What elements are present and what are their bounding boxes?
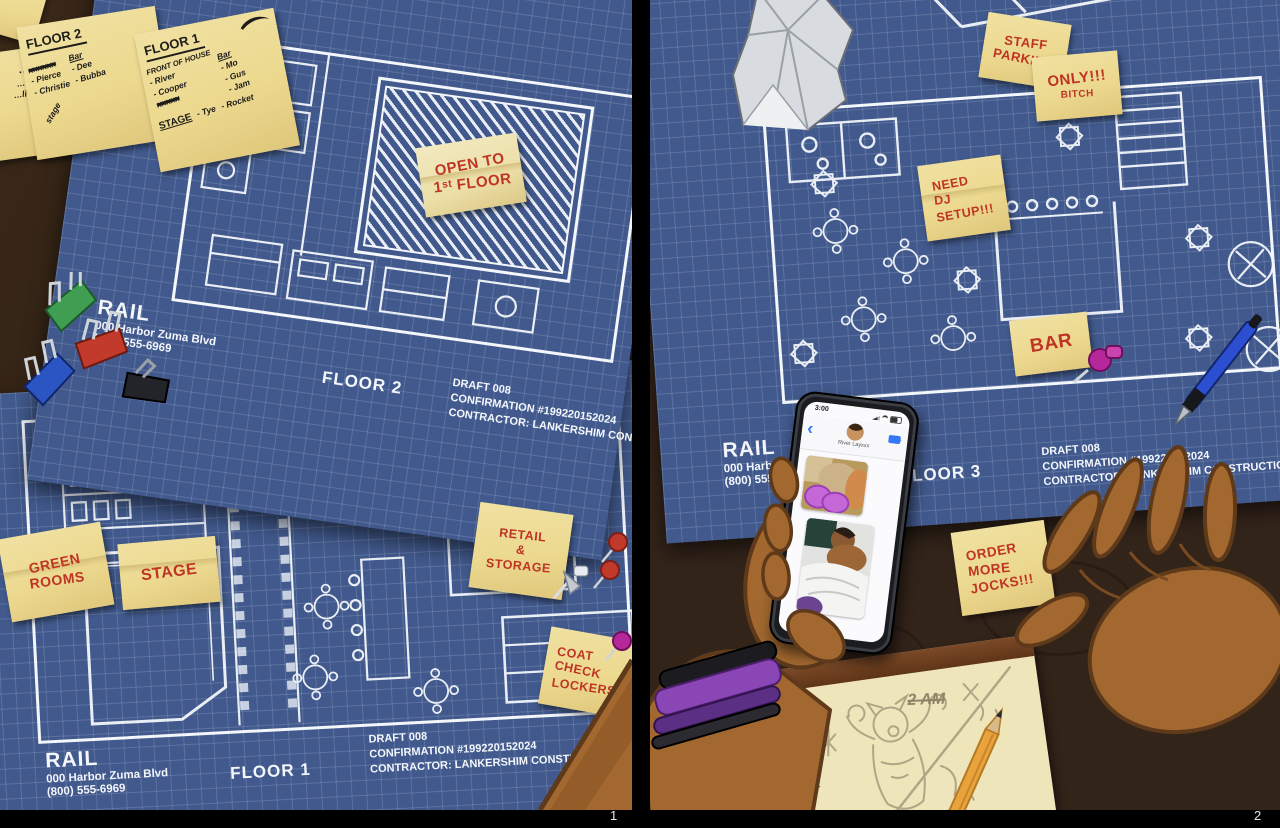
green-binder-clip-icon — [34, 272, 104, 332]
binder-clips — [8, 272, 173, 412]
note-line: - Tye — [195, 104, 218, 123]
sticky-note-stage: STAGE — [117, 536, 220, 610]
blue-binder-clip-icon — [11, 337, 80, 406]
contact-avatar[interactable] — [846, 423, 865, 442]
red-pushpin-icon — [594, 561, 619, 588]
black-binder-clip-icon — [121, 356, 173, 409]
red-binder-clip-icon — [70, 310, 130, 369]
sticky-note-only-bitch: ONLY!!! BITCH — [1031, 50, 1122, 121]
floor1-label: FLOOR 1 — [230, 760, 312, 784]
back-chevron-icon[interactable]: ‹ — [806, 419, 814, 438]
comic-page: RAIL 000 Harbor Zuma Blvd (800) 555-6969… — [0, 0, 1280, 828]
phone-clock: 3:00 — [814, 405, 829, 414]
sticky-note-dj-setup: NEED DJ SETUP!!! — [917, 155, 1011, 242]
comic-panel-2: RAIL 000 Harbor Zuma Blvd (800) 555-6969… — [650, 0, 1280, 810]
wifi-icon — [882, 415, 889, 423]
crumpled-paper — [728, 0, 858, 140]
page-number-1: 1 — [610, 808, 617, 823]
comic-panel-1: RAIL 000 Harbor Zuma Blvd (800) 555-6969… — [0, 0, 632, 810]
note-line: DJ — [933, 192, 952, 209]
note-line: - Rocket — [220, 92, 256, 115]
battery-icon — [890, 416, 903, 424]
sticky-note-floor1-staff: FLOOR 1 FRONT OF HOUSE - River - Cooper … — [134, 8, 300, 173]
floor1-title-block: RAIL 000 Harbor Zuma Blvd (800) 555-6969 — [45, 743, 170, 800]
page-number-2: 2 — [1254, 808, 1261, 823]
left-hand-fingers — [758, 440, 878, 670]
video-call-icon[interactable] — [888, 435, 901, 444]
silver-tack-icon — [554, 566, 588, 598]
ballpoint-pen-icon — [1130, 310, 1280, 460]
sticky-note-green-rooms: GREEN ROOMS — [0, 522, 115, 623]
forearm-edge — [470, 620, 632, 810]
note-line: BAR — [1028, 329, 1074, 359]
note-line: BITCH — [1061, 88, 1095, 102]
right-hand — [1010, 440, 1280, 750]
signal-icon — [872, 415, 881, 421]
note-line: & — [515, 542, 527, 559]
note-line: STAGE — [157, 111, 193, 134]
red-pushpin-icon — [602, 533, 627, 562]
magenta-pushpin-icon — [1070, 336, 1130, 386]
